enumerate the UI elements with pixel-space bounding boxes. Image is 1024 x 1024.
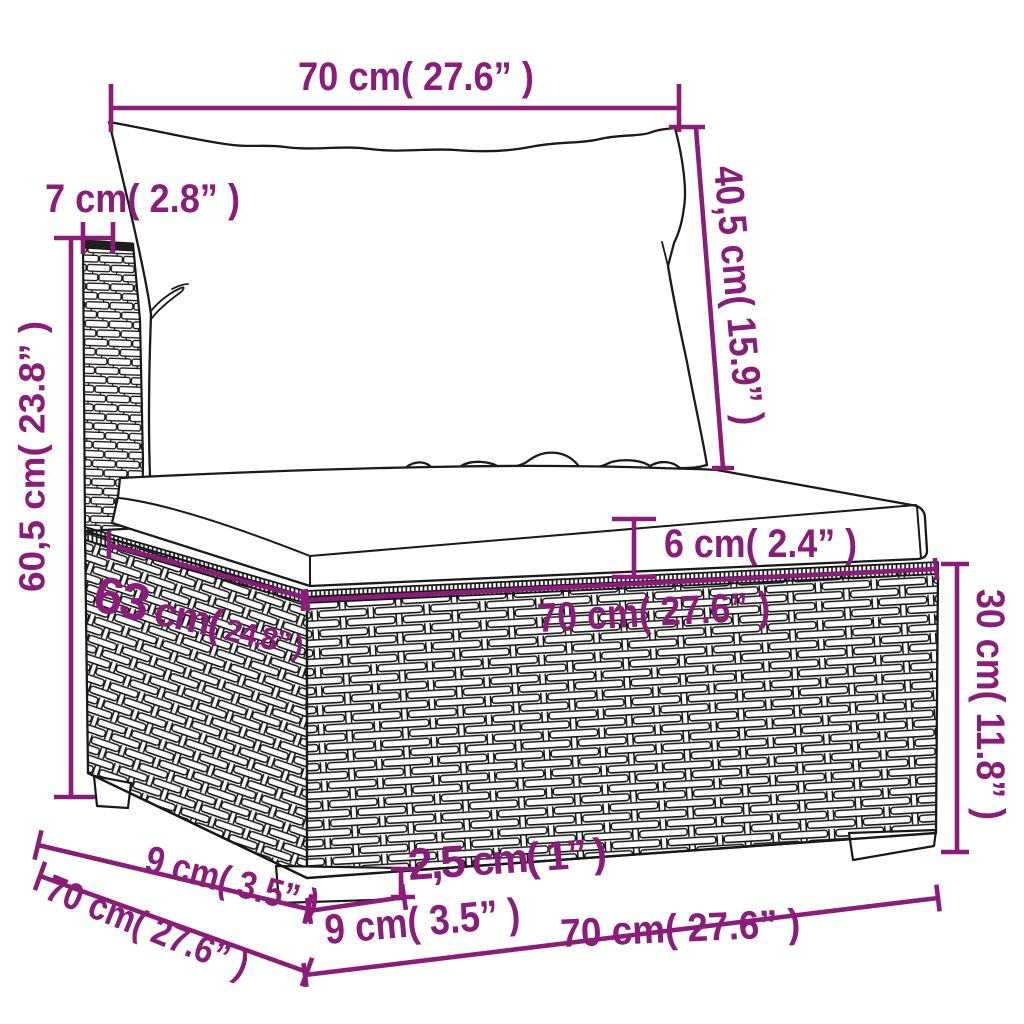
svg-text:6 cm( 2.4” ): 6 cm( 2.4” )	[664, 522, 857, 566]
svg-text:30 cm( 11.8” ): 30 cm( 11.8” )	[968, 589, 1012, 820]
svg-text:7 cm( 2.8” ): 7 cm( 2.8” )	[45, 177, 240, 221]
svg-text:70 cm( 27.6” ): 70 cm( 27.6” )	[298, 55, 534, 99]
svg-text:60,5 cm( 23.8” ): 60,5 cm( 23.8” )	[12, 321, 53, 592]
